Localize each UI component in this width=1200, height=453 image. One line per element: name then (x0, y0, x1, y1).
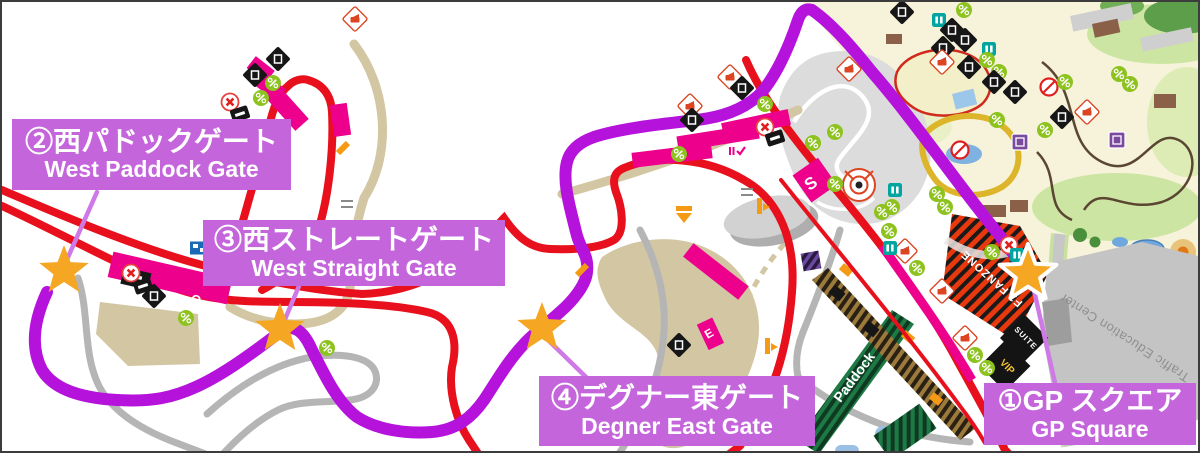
concession-icon (874, 204, 890, 220)
pond (835, 445, 859, 453)
bridge-crossing-icon (741, 189, 753, 195)
gate-label-gp-square: ①GP スクエア GP Square (984, 383, 1196, 445)
concession-icon (956, 2, 972, 18)
info-icon (932, 13, 946, 27)
attraction-icon (1012, 134, 1028, 150)
closed-icon (123, 265, 140, 282)
gate-label-west-straight: ③西ストレートゲート West Straight Gate (203, 220, 505, 286)
gate-label-jp: ②西パドックゲート (12, 128, 291, 157)
concession-icon (757, 96, 773, 112)
bridge-crossing-icon (341, 201, 353, 207)
no-entry-icon (1041, 79, 1058, 96)
gate-label-en: Degner East Gate (539, 415, 815, 438)
concession-icon (1122, 76, 1138, 92)
helipad-icon (843, 169, 875, 201)
circuit-gate-map: F1 FANZONE Traffic Education Center SUIT… (0, 0, 1200, 453)
concession-icon (827, 176, 843, 192)
concession-icon (1057, 74, 1073, 90)
flag-marker-icon (765, 338, 778, 354)
concession-icon (989, 112, 1005, 128)
direction-arrow-icon (676, 206, 692, 223)
concession-icon (805, 135, 821, 151)
info-icon (883, 241, 897, 255)
gate-label-west-paddock: ②西パドックゲート West Paddock Gate (12, 119, 291, 190)
concession-icon (1037, 122, 1053, 138)
ticket-check-icon (726, 144, 746, 158)
info-icon (888, 183, 902, 197)
concession-icon (937, 199, 953, 215)
concession-icon (319, 340, 335, 356)
gate-label-en: West Paddock Gate (12, 158, 291, 181)
attraction-icon (1109, 132, 1125, 148)
gate-label-degner-east: ④デグナー東ゲート Degner East Gate (539, 376, 815, 446)
concession-icon (671, 146, 687, 162)
concession-icon (265, 75, 281, 91)
closed-icon (222, 94, 239, 111)
concession-icon (979, 360, 995, 376)
concession-icon (178, 310, 194, 326)
concession-icon (909, 260, 925, 276)
concession-icon (881, 223, 897, 239)
footpath-dashed (747, 238, 790, 300)
concession-icon (984, 244, 1000, 260)
photo-spot-icon (342, 6, 367, 31)
gate-marker-icon (336, 141, 350, 155)
gate-label-en: GP Square (984, 418, 1196, 441)
tower-block (801, 251, 822, 272)
gate-label-jp: ④デグナー東ゲート (539, 384, 815, 413)
concession-icon (967, 347, 983, 363)
no-entry-icon (952, 142, 969, 159)
gate-label-jp: ①GP スクエア (984, 387, 1196, 416)
gate-label-jp: ③西ストレートゲート (203, 226, 505, 255)
concession-icon (827, 124, 843, 140)
gate-label-en: West Straight Gate (203, 257, 505, 280)
stand-letter-o: O (189, 291, 202, 308)
concession-icon (979, 52, 995, 68)
concession-icon (253, 90, 269, 106)
